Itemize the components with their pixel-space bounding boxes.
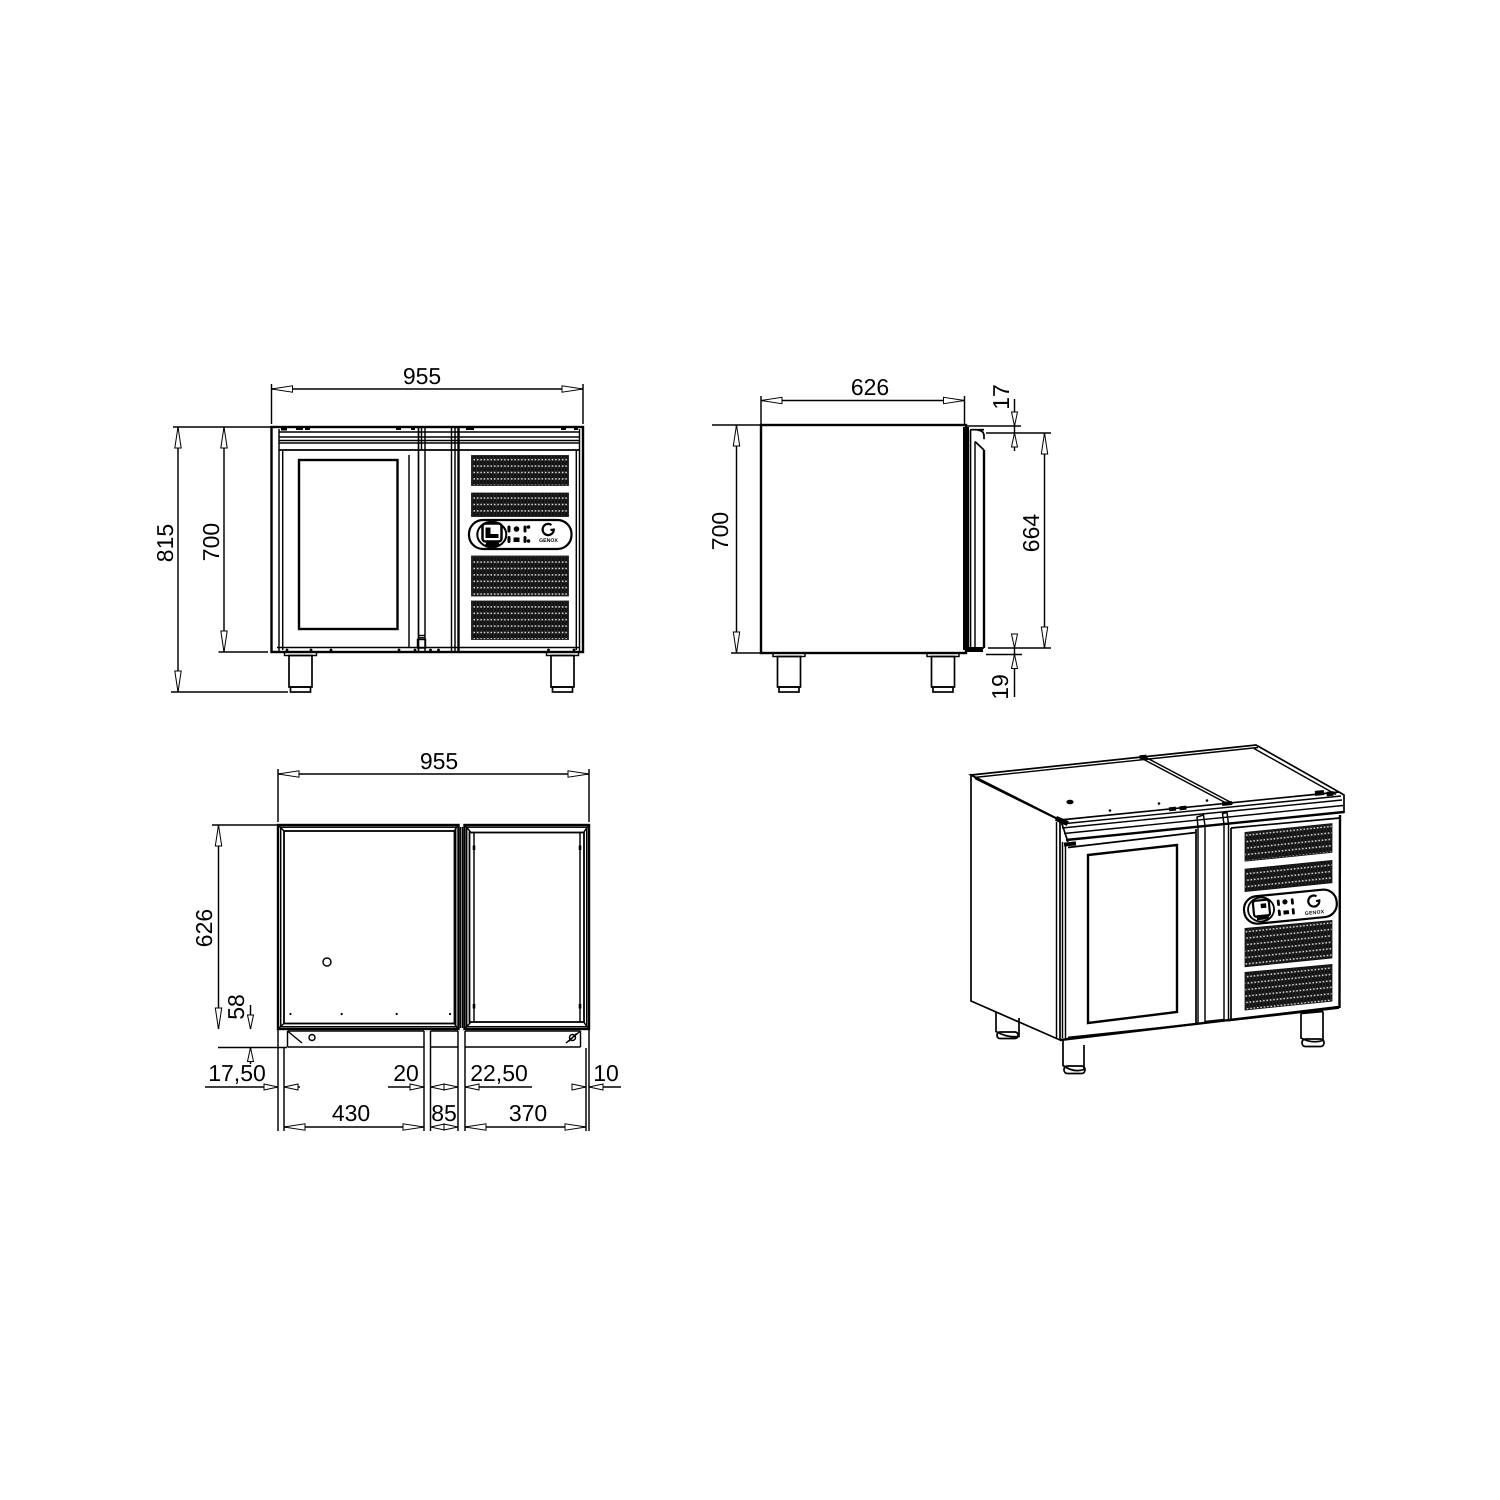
svg-text:430: 430 — [332, 1100, 370, 1126]
svg-text:370: 370 — [509, 1100, 547, 1126]
svg-text:22,50: 22,50 — [470, 1060, 528, 1086]
svg-text:626: 626 — [851, 374, 889, 400]
svg-text:955: 955 — [420, 748, 458, 774]
svg-text:10: 10 — [593, 1060, 619, 1086]
svg-text:17: 17 — [988, 384, 1014, 410]
svg-text:85: 85 — [431, 1100, 457, 1126]
svg-text:58: 58 — [223, 994, 249, 1020]
svg-text:19: 19 — [987, 674, 1013, 700]
svg-text:700: 700 — [707, 512, 733, 550]
svg-text:17,50: 17,50 — [208, 1060, 266, 1086]
svg-text:700: 700 — [198, 523, 224, 561]
svg-text:626: 626 — [191, 909, 217, 947]
svg-text:664: 664 — [1018, 514, 1044, 553]
svg-text:20: 20 — [393, 1060, 419, 1086]
svg-text:815: 815 — [152, 524, 178, 562]
svg-text:GENOX: GENOX — [539, 538, 558, 544]
svg-text:955: 955 — [403, 363, 441, 389]
